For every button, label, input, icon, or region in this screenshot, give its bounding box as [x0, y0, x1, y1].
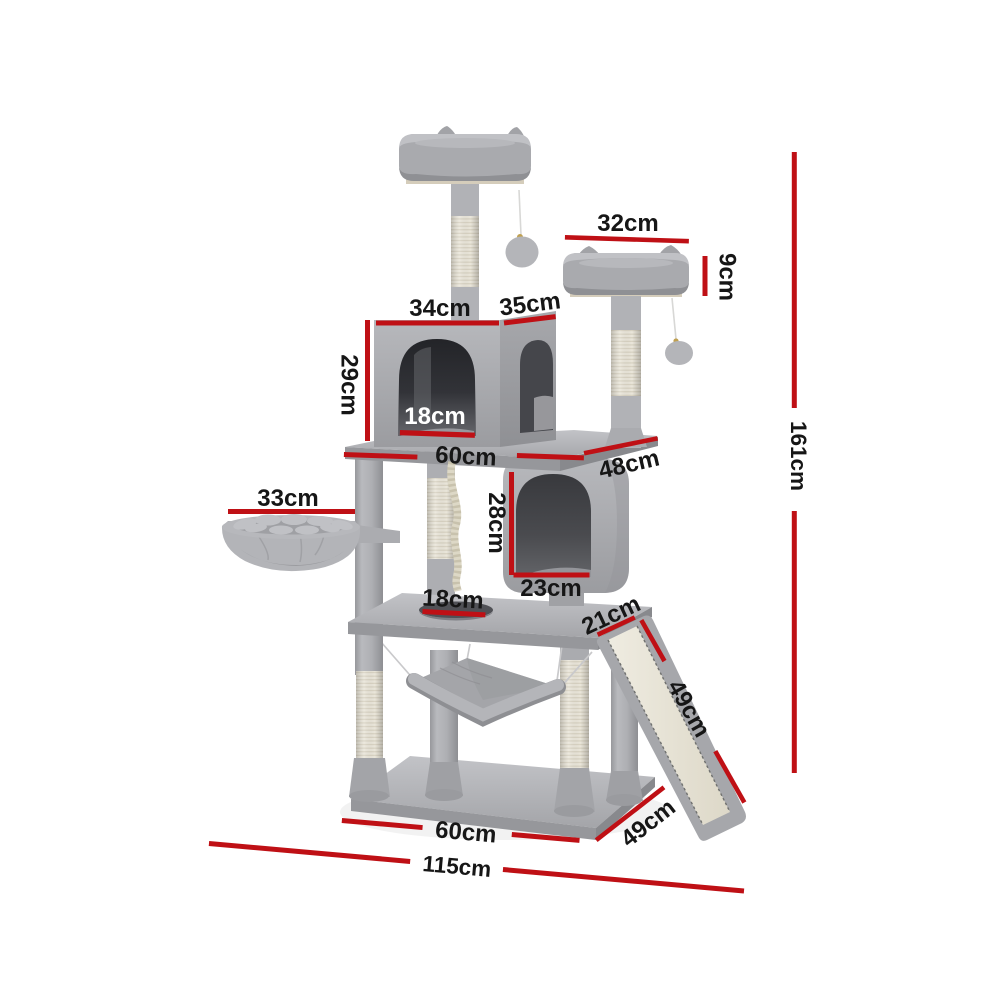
svg-text:9cm: 9cm — [714, 253, 741, 301]
svg-text:23cm: 23cm — [520, 575, 581, 602]
svg-text:34cm: 34cm — [409, 295, 470, 322]
svg-text:60cm: 60cm — [434, 816, 498, 848]
svg-text:161cm: 161cm — [786, 421, 811, 491]
svg-text:60cm: 60cm — [435, 441, 498, 471]
svg-text:33cm: 33cm — [257, 485, 318, 512]
svg-text:29cm: 29cm — [336, 354, 363, 415]
svg-text:28cm: 28cm — [483, 492, 510, 553]
svg-text:32cm: 32cm — [597, 210, 658, 237]
svg-text:18cm: 18cm — [404, 403, 465, 430]
svg-text:18cm: 18cm — [422, 584, 485, 614]
